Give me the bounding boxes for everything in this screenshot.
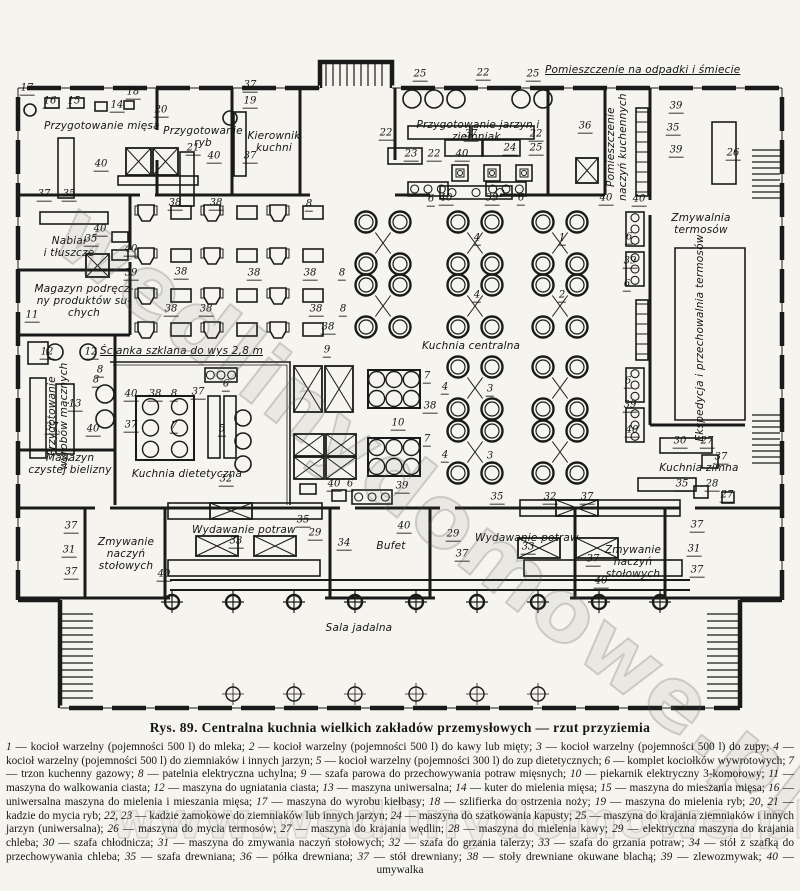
plan-number-marker: 38: [309, 305, 324, 317]
plan-number-marker: 4: [473, 291, 481, 303]
plan-number-marker: 40: [94, 160, 109, 172]
plan-number-marker: 37: [124, 421, 139, 433]
plan-number-marker: 40: [157, 570, 172, 582]
plan-number-marker: 40: [124, 390, 139, 402]
plan-number-marker: 9: [323, 346, 331, 358]
plan-number-marker: 38: [199, 305, 214, 317]
plan-number-marker: 40: [86, 425, 101, 437]
plan-number-marker: 11: [25, 311, 40, 323]
plan-number-marker: 39: [669, 146, 684, 158]
plan-number-marker: 37: [690, 566, 705, 578]
room-label-przygotowanie-ryb: Przygotowanie ryb: [160, 125, 246, 149]
plan-number-marker: 17: [20, 84, 35, 96]
plan-number-marker: 2: [558, 291, 566, 303]
plan-number-marker: 8: [338, 269, 346, 281]
plan-number-marker: 25: [413, 70, 428, 82]
plan-number-marker: 37: [64, 522, 79, 534]
plan-number-marker: 15: [67, 97, 82, 109]
room-label-magazyn-bielizny: Magazyn czystej bielizny: [22, 452, 118, 476]
plan-number-marker: 40: [599, 194, 614, 206]
room-label-magazyn-podreczny: Magazyn podręcz- ny produktów su- chych: [26, 283, 142, 319]
plan-number-marker: 4: [441, 383, 449, 395]
plan-number-marker: 37: [690, 521, 705, 533]
plan-number-marker: 6: [346, 480, 354, 492]
plan-number-marker: 6: [624, 377, 632, 389]
plan-number-marker: 26: [726, 149, 741, 161]
plan-number-marker: 40: [594, 577, 609, 589]
plan-number-marker: 40: [625, 426, 640, 438]
plan-number-marker: 36: [578, 122, 593, 134]
plan-number-marker: 4: [441, 451, 449, 463]
plan-number-marker: 8: [92, 376, 100, 388]
plan-number-marker: 12: [84, 348, 99, 360]
plan-number-marker: 29: [308, 529, 323, 541]
plan-number-marker: 37: [714, 453, 729, 465]
plan-number-marker: 10: [391, 419, 406, 431]
plan-number-marker: 7: [423, 372, 431, 384]
plan-number-marker: 38: [247, 269, 262, 281]
plan-number-marker: 28: [705, 480, 720, 492]
plan-number-marker: 22: [529, 130, 544, 142]
plan-number-marker: 24: [503, 144, 518, 156]
scanned-page: Przygotowanie mięsa Przygotowanie ryb Ki…: [0, 0, 800, 891]
plan-number-marker: 8: [305, 200, 313, 212]
plan-number-marker: 33: [229, 537, 244, 549]
plan-number-marker: 22: [476, 69, 491, 81]
plan-number-marker: 25: [526, 70, 541, 82]
plan-number-marker: 6: [625, 233, 633, 245]
plan-number-marker: 8: [339, 305, 347, 317]
plan-number-marker: 16: [43, 97, 58, 109]
plan-number-marker: 32: [219, 475, 234, 487]
plan-number-marker: 38: [164, 305, 179, 317]
plan-number-marker: 40: [455, 150, 470, 162]
plan-number-marker: 12: [40, 348, 55, 360]
plan-number-marker: 39: [395, 482, 410, 494]
plan-number-marker: 7: [423, 435, 431, 447]
plan-number-marker: 37: [586, 555, 601, 567]
plan-number-marker: 39: [623, 401, 638, 413]
plan-number-marker: 37: [243, 81, 258, 93]
plan-number-marker: 37: [191, 388, 206, 400]
plan-number-marker: 39: [124, 269, 139, 281]
plan-number-marker: 40: [397, 522, 412, 534]
room-label-naczynia-kuchenne: Pomieszczenie naczyń kuchennych: [605, 90, 629, 204]
plan-number-marker: 40: [207, 152, 222, 164]
room-label-bufet: Bufet: [360, 540, 422, 552]
plan-number-marker: 30: [673, 437, 688, 449]
plan-number-marker: 22: [379, 129, 394, 141]
label-scianka-szklana: Ścianka szklana do wys 2,8 m: [100, 345, 278, 357]
plan-number-marker: 6: [427, 195, 435, 207]
plan-number-marker: 38: [423, 402, 438, 414]
plan-number-marker: 39: [485, 194, 500, 206]
plan-number-marker: 39: [623, 257, 638, 269]
plan-number-marker: 3: [486, 385, 494, 397]
plan-number-marker: 21: [186, 144, 201, 156]
room-label-sala-jadalna: Sala jadalna: [303, 622, 415, 634]
plan-number-marker: 8: [170, 390, 178, 402]
plan-number-marker: 38: [174, 268, 189, 280]
plan-number-marker: 7: [170, 422, 178, 434]
plan-number-marker: 35: [62, 190, 77, 202]
plan-number-marker: 37: [243, 152, 258, 164]
plan-number-marker: 37: [64, 568, 79, 580]
plan-number-marker: 33: [521, 543, 536, 555]
room-label-ekspedycja: Ekspedycja i przechowalnia termosów: [694, 221, 706, 455]
plan-number-marker: 38: [168, 199, 183, 211]
room-label-kuchnia-centralna: Kuchnia centralna: [422, 340, 544, 352]
plan-number-marker: 35: [675, 480, 690, 492]
figure-caption: Rys. 89. Centralna kuchnia wielkich zakł…: [0, 720, 800, 736]
plan-number-marker: 22: [427, 150, 442, 162]
plan-number-marker: 37: [37, 190, 52, 202]
plan-number-marker: 31: [687, 545, 702, 557]
plan-number-marker: 35: [84, 235, 99, 247]
plan-number-marker: 6: [517, 194, 525, 206]
plan-number-marker: 37: [580, 493, 595, 505]
plan-number-marker: 34: [337, 539, 352, 551]
room-label-kuchnia-dietetyczna: Kuchnia dietetyczna: [118, 468, 256, 480]
plan-number-marker: 35: [490, 493, 505, 505]
plan-number-marker: 1: [558, 234, 566, 246]
room-label-zmywanie-left: Zmywanie naczyń stołowych: [88, 536, 164, 572]
plan-number-marker: 6: [623, 280, 631, 292]
plan-number-marker: 35: [296, 516, 311, 528]
room-label-odpadki: Pomieszczenie na odpadki i śmiecie: [545, 64, 777, 76]
plan-number-marker: 38: [209, 199, 224, 211]
plan-number-marker: 40: [124, 245, 139, 256]
plan-number-marker: 3: [486, 452, 494, 464]
plan-number-marker: 39: [669, 102, 684, 114]
plan-number-marker: 5: [218, 425, 226, 437]
plan-number-marker: 29: [446, 530, 461, 542]
plan-number-marker: 27: [700, 437, 715, 449]
plan-number-marker: 4: [473, 234, 481, 246]
plan-number-marker: 14: [110, 101, 125, 113]
plan-number-marker: 38: [303, 269, 318, 281]
plan-number-marker: 37: [455, 550, 470, 562]
plan-number-marker: 20: [154, 106, 169, 118]
plan-number-marker: 35: [666, 124, 681, 136]
legend-text: 1 — kocioł warzelny (pojemności 500 l) d…: [6, 741, 794, 878]
plan-number-marker: 27: [720, 491, 735, 503]
plan-number-marker: 40: [632, 195, 647, 207]
plan-number-marker: 25: [529, 144, 544, 156]
label-wydawanie-right: Wydawanie potraw: [475, 532, 603, 544]
room-label-przygotowanie-miesa: Przygotowanie mięsa: [44, 120, 176, 132]
plan-number-marker: 40: [327, 480, 342, 492]
plan-number-marker: 13: [68, 400, 83, 412]
plan-number-marker: 6: [222, 380, 230, 392]
plan-number-marker: 37: [45, 423, 60, 435]
plan-number-marker: 18: [126, 88, 141, 100]
plan-number-marker: 32: [543, 493, 558, 505]
floor-plan: Przygotowanie mięsa Przygotowanie ryb Ki…: [0, 0, 800, 715]
plan-number-marker: 40: [439, 194, 454, 206]
plan-number-marker: 38: [321, 323, 336, 335]
plan-number-marker: 31: [62, 546, 77, 558]
plan-number-marker: 19: [243, 97, 258, 109]
room-label-kuchnia-zimna: Kuchnia zimna: [648, 462, 750, 474]
plan-number-marker: 23: [404, 150, 419, 162]
plan-number-marker: 37: [464, 130, 479, 142]
plan-number-marker: 38: [148, 390, 163, 402]
